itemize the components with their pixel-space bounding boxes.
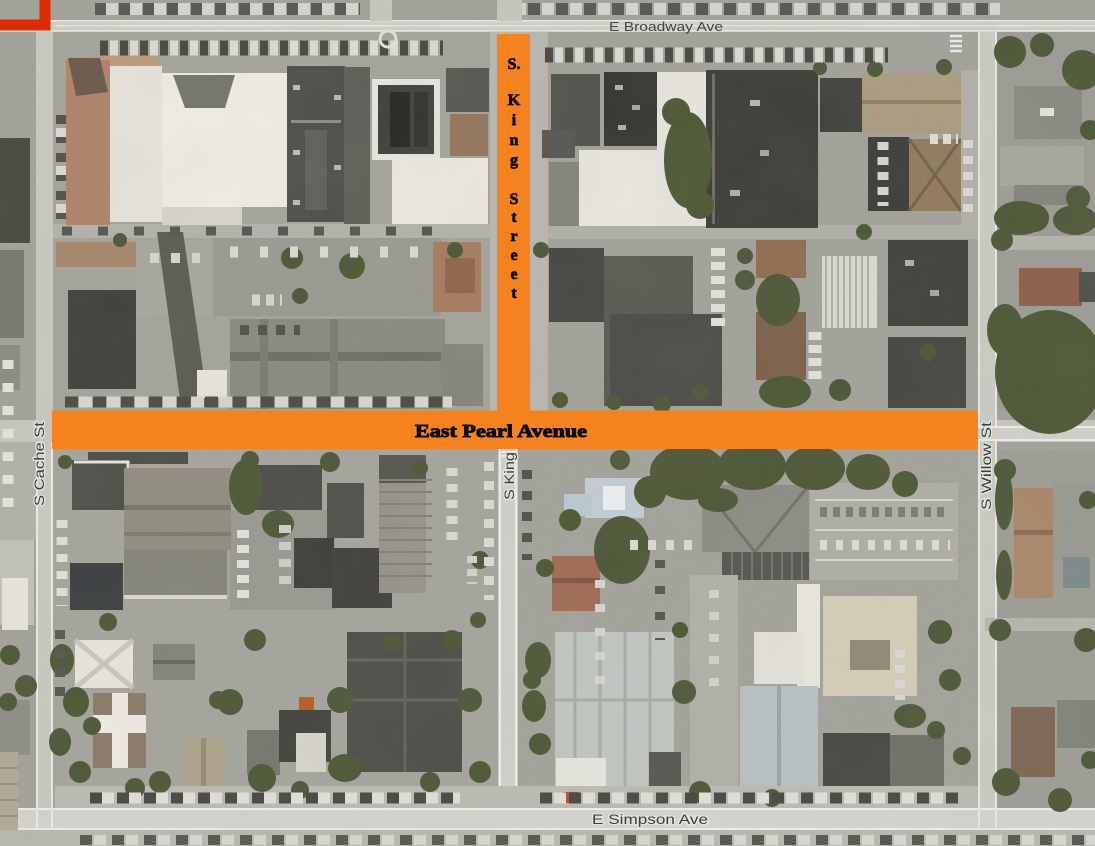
svg-text:S: S <box>510 191 519 208</box>
svg-text:S.: S. <box>508 56 521 73</box>
svg-text:i: i <box>512 112 517 129</box>
svg-text:g: g <box>510 152 518 169</box>
svg-text:K: K <box>508 92 521 109</box>
svg-text:t: t <box>511 209 517 226</box>
svg-text:e: e <box>510 247 517 264</box>
svg-text:East Pearl Avenue: East Pearl Avenue <box>415 421 587 441</box>
svg-text:n: n <box>510 132 519 149</box>
svg-text:t: t <box>511 285 517 302</box>
svg-text:r: r <box>510 228 517 245</box>
svg-text:e: e <box>510 266 517 283</box>
